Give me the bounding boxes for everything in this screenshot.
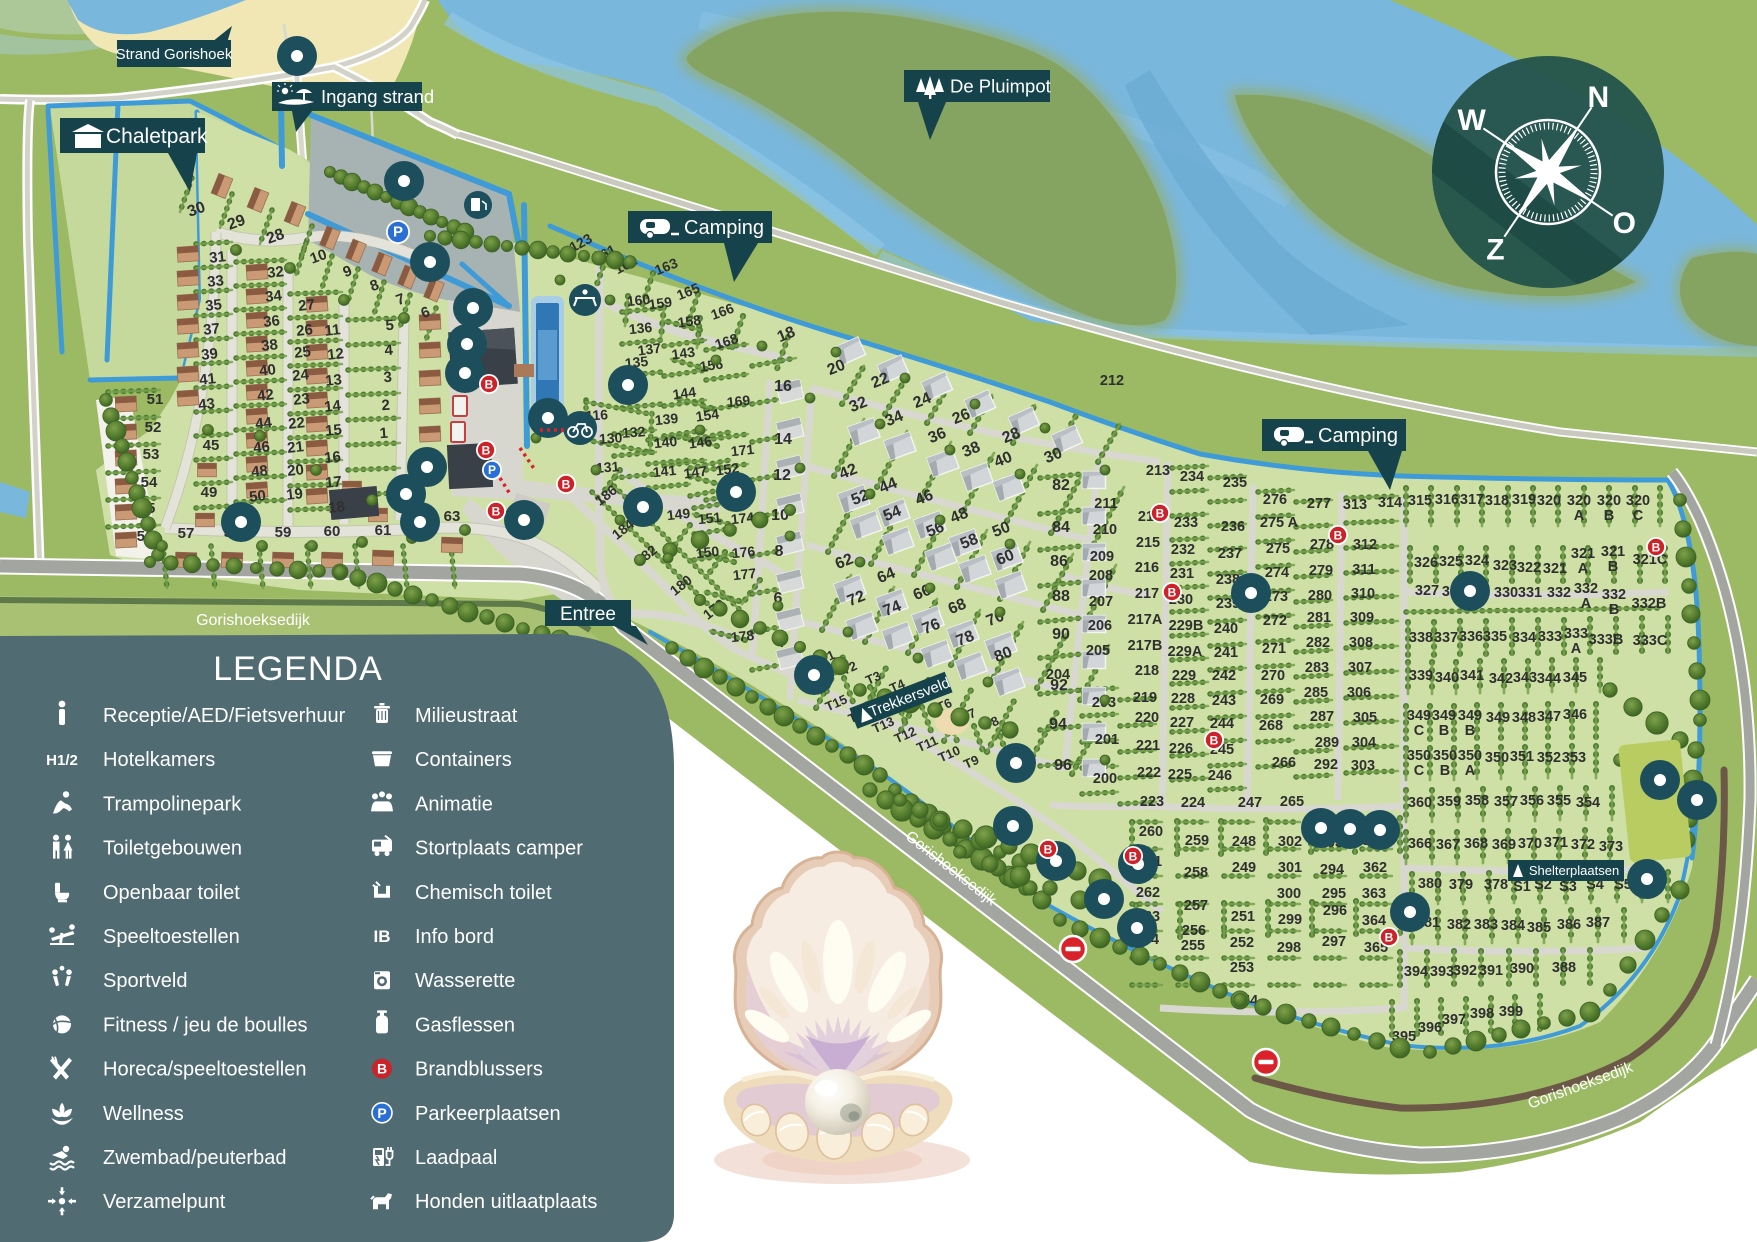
svg-text:26: 26: [295, 321, 313, 340]
svg-text:351: 351: [1510, 749, 1534, 765]
svg-text:327: 327: [1415, 583, 1439, 599]
svg-text:B: B: [482, 444, 491, 458]
svg-text:C: C: [1633, 508, 1644, 524]
svg-text:212: 212: [1100, 373, 1124, 389]
svg-text:13: 13: [324, 371, 342, 390]
svg-text:338: 338: [1409, 630, 1433, 646]
svg-text:B: B: [1652, 541, 1661, 555]
svg-text:354: 354: [1576, 795, 1600, 811]
svg-text:321: 321: [1543, 561, 1567, 577]
svg-text:Strand Gorishoek: Strand Gorishoek: [116, 46, 233, 63]
svg-text:84: 84: [1052, 519, 1070, 536]
svg-text:283: 283: [1305, 660, 1329, 676]
svg-text:332B: 332B: [1632, 596, 1667, 612]
svg-text:220: 220: [1135, 710, 1159, 726]
svg-text:342: 342: [1489, 671, 1513, 687]
svg-text:44: 44: [254, 414, 273, 433]
svg-text:370: 370: [1518, 836, 1542, 852]
svg-text:352: 352: [1537, 750, 1561, 766]
svg-text:132: 132: [621, 423, 646, 441]
svg-text:49: 49: [201, 484, 218, 501]
svg-text:40: 40: [258, 361, 276, 380]
svg-text:45: 45: [203, 437, 220, 454]
svg-text:333: 333: [1564, 626, 1588, 642]
svg-text:B: B: [562, 478, 571, 492]
svg-text:Zwembad/peuterbad: Zwembad/peuterbad: [103, 1147, 286, 1169]
svg-text:216: 216: [1135, 560, 1159, 576]
svg-text:LEGENDA: LEGENDA: [213, 650, 383, 688]
svg-text:270: 270: [1261, 668, 1285, 684]
svg-text:240: 240: [1214, 621, 1238, 637]
svg-text:B: B: [1044, 843, 1053, 857]
svg-text:16: 16: [774, 378, 792, 395]
svg-text:277: 277: [1307, 496, 1331, 512]
svg-text:219: 219: [1133, 690, 1157, 706]
svg-text:B: B: [492, 505, 501, 519]
svg-text:385: 385: [1527, 920, 1551, 936]
svg-text:De Pluimpot: De Pluimpot: [950, 76, 1051, 97]
svg-text:363: 363: [1362, 886, 1386, 902]
svg-text:275 A: 275 A: [1260, 515, 1299, 531]
svg-text:297: 297: [1322, 934, 1346, 950]
svg-text:317: 317: [1460, 492, 1484, 508]
svg-text:298: 298: [1277, 940, 1301, 956]
svg-text:279: 279: [1309, 563, 1333, 579]
svg-text:301: 301: [1278, 860, 1302, 876]
svg-text:221: 221: [1136, 738, 1160, 754]
svg-text:394: 394: [1404, 964, 1428, 980]
svg-text:371: 371: [1544, 835, 1568, 851]
svg-text:343: 343: [1513, 670, 1537, 686]
svg-text:346: 346: [1563, 707, 1587, 723]
svg-text:Gorishoeksedijk: Gorishoeksedijk: [196, 612, 311, 629]
svg-text:151: 151: [697, 509, 722, 527]
svg-text:387: 387: [1586, 915, 1610, 931]
svg-text:369: 369: [1492, 837, 1516, 853]
svg-text:255: 255: [1181, 938, 1205, 954]
svg-text:36: 36: [262, 312, 280, 331]
svg-text:274: 274: [1265, 565, 1289, 581]
svg-text:248: 248: [1232, 834, 1256, 850]
svg-text:233: 233: [1174, 515, 1198, 531]
svg-text:94: 94: [1049, 716, 1067, 733]
svg-text:332: 332: [1602, 587, 1626, 603]
svg-text:373: 373: [1599, 839, 1623, 855]
svg-text:332: 332: [1547, 585, 1571, 601]
svg-text:321: 321: [1571, 546, 1595, 562]
svg-text:396: 396: [1418, 1020, 1442, 1036]
svg-text:21: 21: [286, 438, 304, 457]
svg-text:337: 337: [1434, 630, 1458, 646]
svg-text:347: 347: [1537, 709, 1561, 725]
svg-text:262: 262: [1136, 885, 1160, 901]
svg-text:304: 304: [1352, 735, 1376, 751]
svg-text:311: 311: [1352, 562, 1375, 578]
svg-text:308: 308: [1349, 635, 1373, 651]
svg-text:A: A: [1581, 596, 1592, 612]
svg-text:143: 143: [671, 343, 697, 362]
svg-text:362: 362: [1363, 860, 1387, 876]
svg-text:154: 154: [695, 405, 721, 424]
svg-text:336: 336: [1459, 629, 1483, 645]
svg-text:226: 226: [1169, 741, 1193, 757]
svg-text:27: 27: [297, 296, 315, 315]
svg-text:320: 320: [1597, 493, 1621, 509]
svg-text:C: C: [1414, 763, 1425, 779]
svg-text:60: 60: [324, 523, 341, 540]
svg-text:210: 210: [1093, 522, 1117, 538]
svg-text:B: B: [1210, 734, 1219, 748]
svg-text:159: 159: [648, 293, 674, 312]
svg-text:B: B: [377, 1061, 387, 1077]
svg-text:350: 350: [1485, 750, 1509, 766]
svg-text:96: 96: [1054, 757, 1072, 774]
svg-text:Horeca/speeltoestellen: Horeca/speeltoestellen: [103, 1059, 306, 1081]
svg-text:393: 393: [1430, 964, 1454, 980]
svg-text:367: 367: [1436, 837, 1460, 853]
svg-text:178: 178: [730, 627, 755, 645]
svg-text:20: 20: [286, 461, 304, 480]
svg-text:A: A: [1574, 508, 1585, 524]
svg-text:306: 306: [1347, 685, 1371, 701]
svg-text:345: 345: [1563, 670, 1587, 686]
svg-text:359: 359: [1437, 794, 1461, 810]
svg-text:384: 384: [1501, 918, 1525, 934]
svg-text:309: 309: [1350, 610, 1374, 626]
svg-text:19: 19: [285, 485, 303, 504]
svg-text:Parkeerplaatsen: Parkeerplaatsen: [415, 1103, 561, 1125]
svg-text:34: 34: [264, 287, 283, 306]
svg-text:282: 282: [1306, 635, 1330, 651]
svg-text:399: 399: [1499, 1004, 1523, 1020]
svg-text:A: A: [1578, 561, 1589, 577]
svg-text:12: 12: [326, 345, 344, 364]
svg-text:P: P: [393, 224, 403, 241]
svg-text:275: 275: [1266, 541, 1290, 557]
svg-text:52: 52: [145, 419, 162, 436]
svg-text:S3: S3: [1559, 879, 1577, 895]
svg-text:25: 25: [293, 343, 311, 362]
svg-text:Toiletgebouwen: Toiletgebouwen: [103, 838, 242, 860]
svg-text:Ingang strand: Ingang strand: [321, 86, 434, 107]
svg-text:294: 294: [1320, 862, 1344, 878]
svg-text:B: B: [1608, 559, 1618, 575]
svg-text:33: 33: [206, 272, 224, 291]
svg-text:280: 280: [1308, 588, 1332, 604]
svg-text:242: 242: [1212, 668, 1236, 684]
svg-text:260: 260: [1139, 824, 1163, 840]
svg-text:331: 331: [1518, 585, 1542, 601]
svg-text:177: 177: [732, 565, 757, 583]
svg-text:B: B: [1439, 723, 1449, 739]
svg-text:252: 252: [1230, 935, 1254, 951]
svg-text:276: 276: [1263, 492, 1287, 508]
svg-text:5: 5: [385, 317, 395, 335]
svg-text:349: 349: [1432, 708, 1456, 724]
svg-text:B: B: [485, 378, 494, 392]
svg-text:Containers: Containers: [415, 749, 512, 771]
svg-text:35: 35: [204, 296, 222, 315]
svg-text:Laadpaal: Laadpaal: [415, 1147, 497, 1169]
svg-text:139: 139: [654, 410, 679, 428]
svg-text:334: 334: [1512, 630, 1536, 646]
svg-text:249: 249: [1232, 860, 1256, 876]
svg-text:228: 228: [1171, 691, 1195, 707]
svg-text:Wellness: Wellness: [103, 1103, 184, 1125]
svg-text:22: 22: [287, 414, 305, 433]
svg-text:B: B: [1168, 586, 1177, 600]
svg-text:330: 330: [1494, 585, 1518, 601]
svg-text:292: 292: [1314, 757, 1338, 773]
svg-text:320: 320: [1626, 493, 1650, 509]
svg-text:201: 201: [1095, 732, 1119, 748]
svg-text:42: 42: [256, 386, 274, 405]
svg-text:353: 353: [1562, 750, 1586, 766]
svg-text:266: 266: [1272, 755, 1296, 771]
svg-text:241: 241: [1214, 645, 1238, 661]
svg-text:229B: 229B: [1169, 618, 1204, 634]
svg-text:P: P: [488, 463, 496, 477]
svg-text:231: 231: [1170, 566, 1194, 582]
svg-text:323: 323: [1493, 558, 1517, 574]
svg-text:391: 391: [1479, 963, 1503, 979]
svg-text:209: 209: [1090, 549, 1114, 565]
svg-text:147: 147: [683, 462, 709, 481]
svg-text:53: 53: [143, 446, 160, 463]
svg-text:271: 271: [1262, 641, 1286, 657]
svg-text:326: 326: [1414, 555, 1438, 571]
svg-text:N: N: [1587, 81, 1609, 114]
svg-text:IB: IB: [374, 927, 391, 946]
svg-text:224: 224: [1181, 795, 1205, 811]
svg-text:37: 37: [202, 320, 220, 339]
svg-text:141: 141: [652, 462, 677, 480]
svg-text:Speeltoestellen: Speeltoestellen: [103, 926, 240, 948]
svg-text:368: 368: [1464, 836, 1488, 852]
svg-text:Shelterplaatsen: Shelterplaatsen: [1529, 863, 1619, 878]
svg-text:15: 15: [324, 421, 342, 440]
svg-text:320: 320: [1567, 493, 1591, 509]
svg-text:Gasflessen: Gasflessen: [415, 1014, 515, 1036]
svg-text:272: 272: [1263, 613, 1287, 629]
svg-text:63: 63: [444, 508, 461, 525]
svg-text:Wasserette: Wasserette: [415, 970, 515, 992]
svg-text:14: 14: [323, 397, 342, 416]
svg-text:86: 86: [1050, 553, 1068, 570]
svg-text:287: 287: [1310, 709, 1334, 725]
svg-text:318: 318: [1485, 493, 1509, 509]
svg-text:217A: 217A: [1128, 612, 1163, 628]
svg-text:149: 149: [666, 505, 691, 523]
svg-text:208: 208: [1089, 568, 1113, 584]
svg-text:169: 169: [726, 392, 751, 410]
svg-text:332: 332: [1574, 581, 1598, 597]
svg-text:204: 204: [1046, 667, 1070, 683]
svg-text:268: 268: [1259, 718, 1283, 734]
svg-text:349: 349: [1458, 708, 1482, 724]
svg-text:206: 206: [1088, 618, 1112, 634]
svg-text:2: 2: [381, 397, 391, 415]
svg-text:356: 356: [1520, 793, 1544, 809]
svg-text:229A: 229A: [1168, 644, 1203, 660]
svg-text:57: 57: [178, 525, 195, 542]
svg-text:50: 50: [248, 487, 266, 506]
svg-text:340: 340: [1435, 670, 1459, 686]
svg-text:31: 31: [208, 248, 226, 267]
svg-text:Entree: Entree: [560, 604, 616, 625]
svg-text:Stortplaats camper: Stortplaats camper: [415, 838, 583, 860]
svg-text:320: 320: [1537, 493, 1561, 509]
svg-text:379: 379: [1449, 877, 1473, 893]
svg-text:285: 285: [1304, 685, 1328, 701]
svg-text:348: 348: [1512, 710, 1536, 726]
svg-text:256: 256: [1182, 923, 1206, 939]
svg-text:322: 322: [1517, 560, 1541, 576]
svg-text:Camping: Camping: [684, 217, 764, 239]
svg-text:357: 357: [1494, 794, 1518, 810]
svg-text:366: 366: [1408, 836, 1432, 852]
svg-text:265: 265: [1280, 794, 1304, 810]
svg-text:176: 176: [731, 543, 756, 561]
svg-text:171: 171: [730, 441, 755, 459]
svg-text:383: 383: [1474, 917, 1498, 933]
svg-text:259: 259: [1185, 833, 1209, 849]
svg-text:392: 392: [1453, 963, 1477, 979]
svg-text:B: B: [1385, 931, 1394, 945]
svg-text:223: 223: [1140, 794, 1164, 810]
svg-text:355: 355: [1547, 793, 1571, 809]
svg-text:358: 358: [1465, 793, 1489, 809]
svg-text:38: 38: [260, 336, 278, 355]
svg-text:217: 217: [1135, 586, 1159, 602]
svg-text:W: W: [1458, 104, 1487, 137]
svg-text:349: 349: [1407, 708, 1431, 724]
svg-text:12: 12: [773, 467, 791, 484]
svg-text:335: 335: [1483, 629, 1507, 645]
svg-text:235: 235: [1223, 475, 1247, 491]
svg-text:333C: 333C: [1633, 633, 1668, 649]
svg-text:222: 222: [1137, 765, 1161, 781]
svg-text:48: 48: [250, 462, 268, 481]
svg-text:300: 300: [1277, 886, 1301, 902]
svg-text:41: 41: [198, 370, 216, 389]
svg-text:3: 3: [383, 369, 393, 387]
svg-text:302: 302: [1278, 834, 1302, 850]
svg-text:16: 16: [323, 448, 341, 467]
svg-text:257: 257: [1184, 898, 1208, 914]
svg-text:307: 307: [1348, 660, 1372, 676]
svg-text:310: 310: [1351, 586, 1375, 602]
svg-text:341: 341: [1460, 668, 1484, 684]
svg-text:32: 32: [266, 263, 284, 282]
svg-text:136: 136: [628, 319, 653, 337]
svg-text:14: 14: [774, 431, 792, 448]
svg-text:144: 144: [672, 383, 698, 402]
svg-text:82: 82: [1052, 477, 1070, 494]
svg-text:246: 246: [1208, 768, 1232, 784]
svg-text:303: 303: [1351, 758, 1375, 774]
svg-text:316: 316: [1435, 492, 1459, 508]
svg-text:88: 88: [1052, 588, 1070, 605]
svg-text:295: 295: [1322, 886, 1346, 902]
svg-text:372: 372: [1571, 837, 1595, 853]
svg-text:8: 8: [775, 543, 784, 560]
svg-text:324: 324: [1465, 553, 1489, 569]
svg-text:269: 269: [1260, 692, 1284, 708]
svg-text:61: 61: [375, 522, 392, 539]
svg-text:344: 344: [1537, 671, 1561, 687]
svg-text:388: 388: [1552, 960, 1576, 976]
svg-text:205: 205: [1086, 643, 1110, 659]
svg-text:Honden uitlaatplaats: Honden uitlaatplaats: [415, 1191, 597, 1213]
svg-text:281: 281: [1307, 610, 1331, 626]
svg-text:90: 90: [1052, 626, 1070, 643]
svg-text:39: 39: [200, 345, 218, 364]
svg-text:315: 315: [1408, 493, 1432, 509]
svg-text:244: 244: [1210, 716, 1234, 732]
svg-text:Animatie: Animatie: [415, 793, 493, 815]
svg-text:Verzamelpunt: Verzamelpunt: [103, 1191, 226, 1213]
svg-text:237: 237: [1218, 546, 1242, 562]
svg-text:213: 213: [1146, 463, 1170, 479]
svg-text:350: 350: [1433, 748, 1457, 764]
svg-text:243: 243: [1212, 693, 1236, 709]
svg-text:253: 253: [1230, 960, 1254, 976]
svg-text:B: B: [1465, 723, 1475, 739]
svg-text:130: 130: [598, 429, 623, 447]
svg-text:Brandblussers: Brandblussers: [415, 1059, 543, 1081]
svg-text:333B: 333B: [1589, 632, 1624, 648]
svg-text:397: 397: [1442, 1012, 1466, 1028]
svg-text:43: 43: [197, 395, 215, 414]
svg-text:Camping: Camping: [1318, 425, 1398, 447]
svg-text:Z: Z: [1486, 233, 1504, 266]
svg-text:Receptie/AED/Fietsverhuur: Receptie/AED/Fietsverhuur: [103, 705, 346, 727]
svg-text:140: 140: [653, 433, 678, 451]
svg-text:313: 313: [1343, 497, 1367, 513]
svg-text:296: 296: [1323, 903, 1347, 919]
svg-text:B: B: [1440, 763, 1450, 779]
svg-text:24: 24: [291, 366, 310, 385]
svg-text:289: 289: [1315, 735, 1339, 751]
svg-text:23: 23: [292, 390, 310, 409]
svg-text:H1/2: H1/2: [46, 752, 78, 769]
svg-text:225: 225: [1168, 767, 1192, 783]
svg-text:251: 251: [1231, 909, 1255, 925]
svg-text:18: 18: [327, 498, 345, 517]
svg-text:312: 312: [1353, 537, 1377, 553]
svg-text:305: 305: [1353, 710, 1377, 726]
svg-text:247: 247: [1238, 795, 1262, 811]
svg-text:218: 218: [1135, 663, 1159, 679]
svg-text:Sportveld: Sportveld: [103, 970, 188, 992]
svg-text:Info bord: Info bord: [415, 926, 494, 948]
svg-text:349: 349: [1486, 710, 1510, 726]
svg-text:Chemisch toilet: Chemisch toilet: [415, 882, 552, 904]
svg-text:339: 339: [1409, 668, 1433, 684]
svg-text:A: A: [1465, 763, 1476, 779]
svg-text:360: 360: [1408, 795, 1432, 811]
svg-text:P: P: [377, 1105, 386, 1121]
svg-text:314: 314: [1378, 495, 1402, 511]
svg-text:382: 382: [1447, 917, 1471, 933]
svg-text:211: 211: [1094, 496, 1117, 512]
svg-text:200: 200: [1093, 771, 1117, 787]
svg-text:17: 17: [324, 473, 342, 492]
svg-text:B: B: [1609, 602, 1619, 618]
svg-text:386: 386: [1557, 917, 1581, 933]
svg-text:137: 137: [637, 339, 663, 358]
